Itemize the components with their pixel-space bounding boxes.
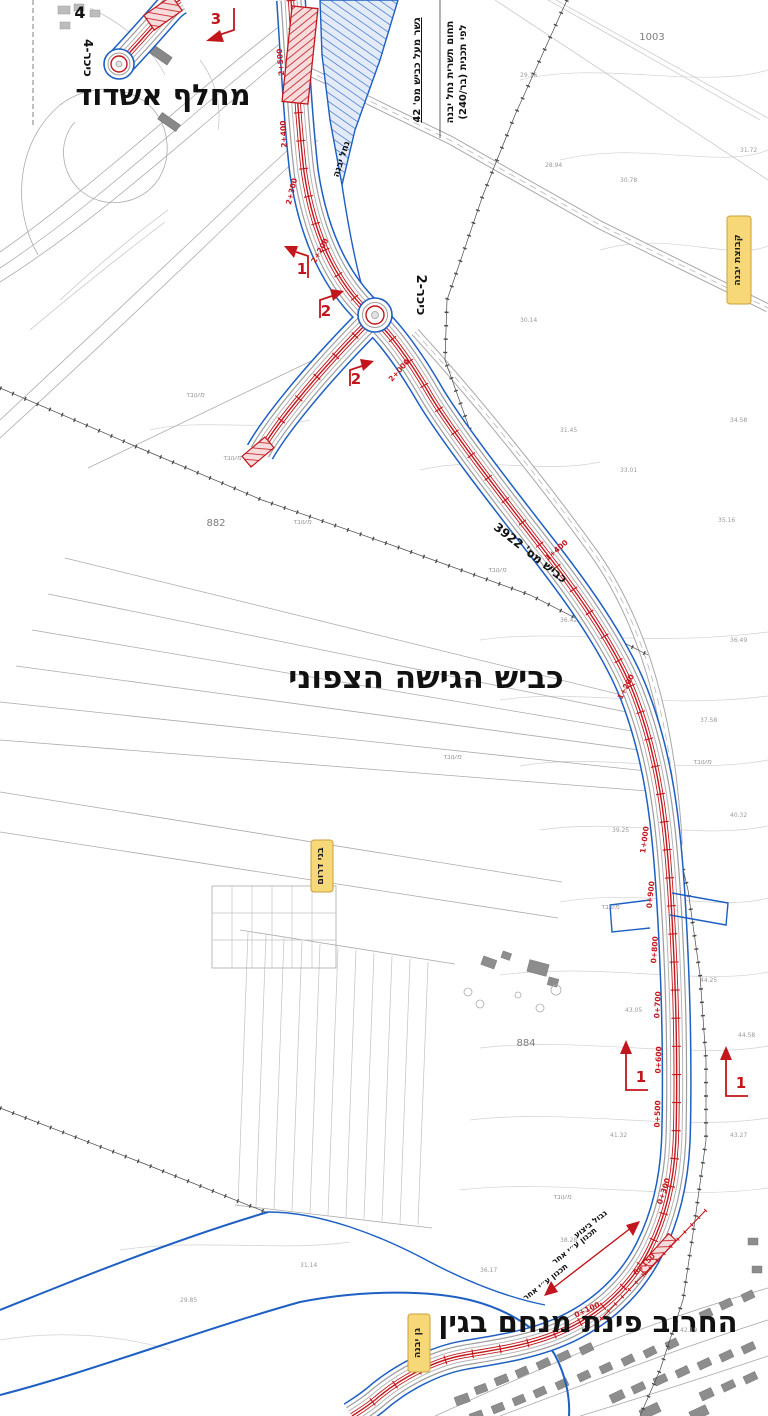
section-number: 1 [736,1074,746,1092]
existing-road-42-east [306,70,768,308]
svg-text:36.42: 36.42 [560,617,577,624]
badge-kvutzat-yavne: קבוצת יבנה [727,216,751,304]
svg-text:36.49: 36.49 [730,637,747,644]
badge-text: גן יבנה [412,1328,423,1358]
svg-text:31.72: 31.72 [740,147,757,154]
section-number: 3 [211,10,221,28]
interchange-ramps [0,0,318,438]
badge-text: קבוצת יבנה [732,234,743,285]
stream-zone-label-1: תחום תשרית נחל יבנה [445,21,456,124]
svg-text:41.32: 41.32 [610,1132,627,1139]
svg-text:40.32: 40.32 [730,812,747,819]
plan-map: 3 1 2 2 1 1 2+500 2+400 2+300 2+200 2+00… [0,0,768,1416]
svg-text:מעובד: מעובד [223,454,242,462]
badge-text: בני דרום [315,847,326,885]
svg-text:31.14: 31.14 [300,1262,317,1269]
section-marker-1a: 1 [284,246,308,278]
section-number: 1 [636,1068,646,1086]
svg-text:30.14: 30.14 [520,317,537,324]
svg-text:מעובד: מעובד [186,391,205,399]
section-number: 2 [321,302,331,320]
section-number: 1 [297,260,307,278]
svg-text:מעובד: מעובד [601,903,620,911]
interchange-label: מחלף אשדוד [75,78,250,112]
roundabout-2-label: כיכר-2 [413,275,428,316]
svg-text:44.58: 44.58 [738,1032,755,1039]
chainage: 0+700 [652,991,662,1019]
corner-marker-4: 4 [74,3,85,22]
svg-text:35.16: 35.16 [718,517,735,524]
svg-text:מעובד: מעובד [553,1193,572,1201]
farm-compound [464,951,561,1012]
jurisdiction-boundary [0,0,706,1416]
parcel-number: 1003 [639,32,664,43]
svg-text:מעובד: מעובד [443,753,462,761]
parcel-number: 882 [206,518,225,529]
parcel-number: 884 [516,1038,535,1049]
svg-text:43.05: 43.05 [625,1007,642,1014]
svg-text:39.25: 39.25 [612,827,629,834]
svg-text:29.16: 29.16 [520,72,537,79]
svg-text:מעובד: מעובד [693,758,712,766]
roundabout-2-symbol [358,298,392,332]
chainage: 0+600 [654,1046,664,1073]
small-plots-grid [212,886,336,968]
section-marker-2a: 2 [320,289,344,320]
section-marker-2b: 2 [350,359,374,388]
svg-text:43.27: 43.27 [730,1132,747,1139]
section-number: 2 [351,370,361,388]
svg-text:31.45: 31.45 [560,427,577,434]
svg-text:30.78: 30.78 [620,177,637,184]
chainage: 0+900 [645,881,657,909]
roundabout-4-label: כיכר-4 [81,39,95,77]
badge-gan-yavne: גן יבנה [408,1314,430,1372]
section-marker-1c: 1 [720,1046,748,1096]
access-road-label: כביש הגישה הצפוני [288,660,564,696]
section-marker-3: 3 [206,8,234,42]
stream-zone-label-2: לפי תכנית (בר/240) [458,24,469,119]
top-notes: גשר מעל כביש מס' 42 תחום תשרית נחל יבנה … [412,0,469,138]
svg-text:37.58: 37.58 [700,717,717,724]
svg-text:34.58: 34.58 [730,417,747,424]
svg-text:36.17: 36.17 [480,1267,497,1274]
badge-bnei-darom: בני דרום [311,840,333,892]
plan-sheet: 3 1 2 2 1 1 2+500 2+400 2+300 2+200 2+00… [0,0,768,1416]
roundabout-4-symbol [104,49,134,79]
svg-text:מעובד: מעובד [488,566,507,574]
design-note-2: תכנון ע״י אחר [521,1262,569,1302]
chainage: 1+000 [638,826,651,854]
parcel-lines [0,0,768,1228]
svg-text:מעובד: מעובד [293,518,312,526]
chainage: 2+400 [278,120,288,148]
svg-text:33.01: 33.01 [620,467,637,474]
chainage: 0+800 [649,936,660,964]
svg-text:44.25: 44.25 [700,977,717,984]
svg-text:29.85: 29.85 [180,1297,197,1304]
landuse-labels: מעובד מעובד מעובד מעובד מעובד מעובד מעוב… [186,391,712,1201]
new-road-corridor [119,0,677,1416]
bridge-note-label: גשר מעל כביש מס' 42 [412,17,423,123]
svg-text:38.28: 38.28 [560,1237,577,1244]
chainage: 0+500 [653,1100,663,1127]
svg-text:28.94: 28.94 [545,162,562,169]
svg-text:42.19: 42.19 [680,1327,697,1334]
